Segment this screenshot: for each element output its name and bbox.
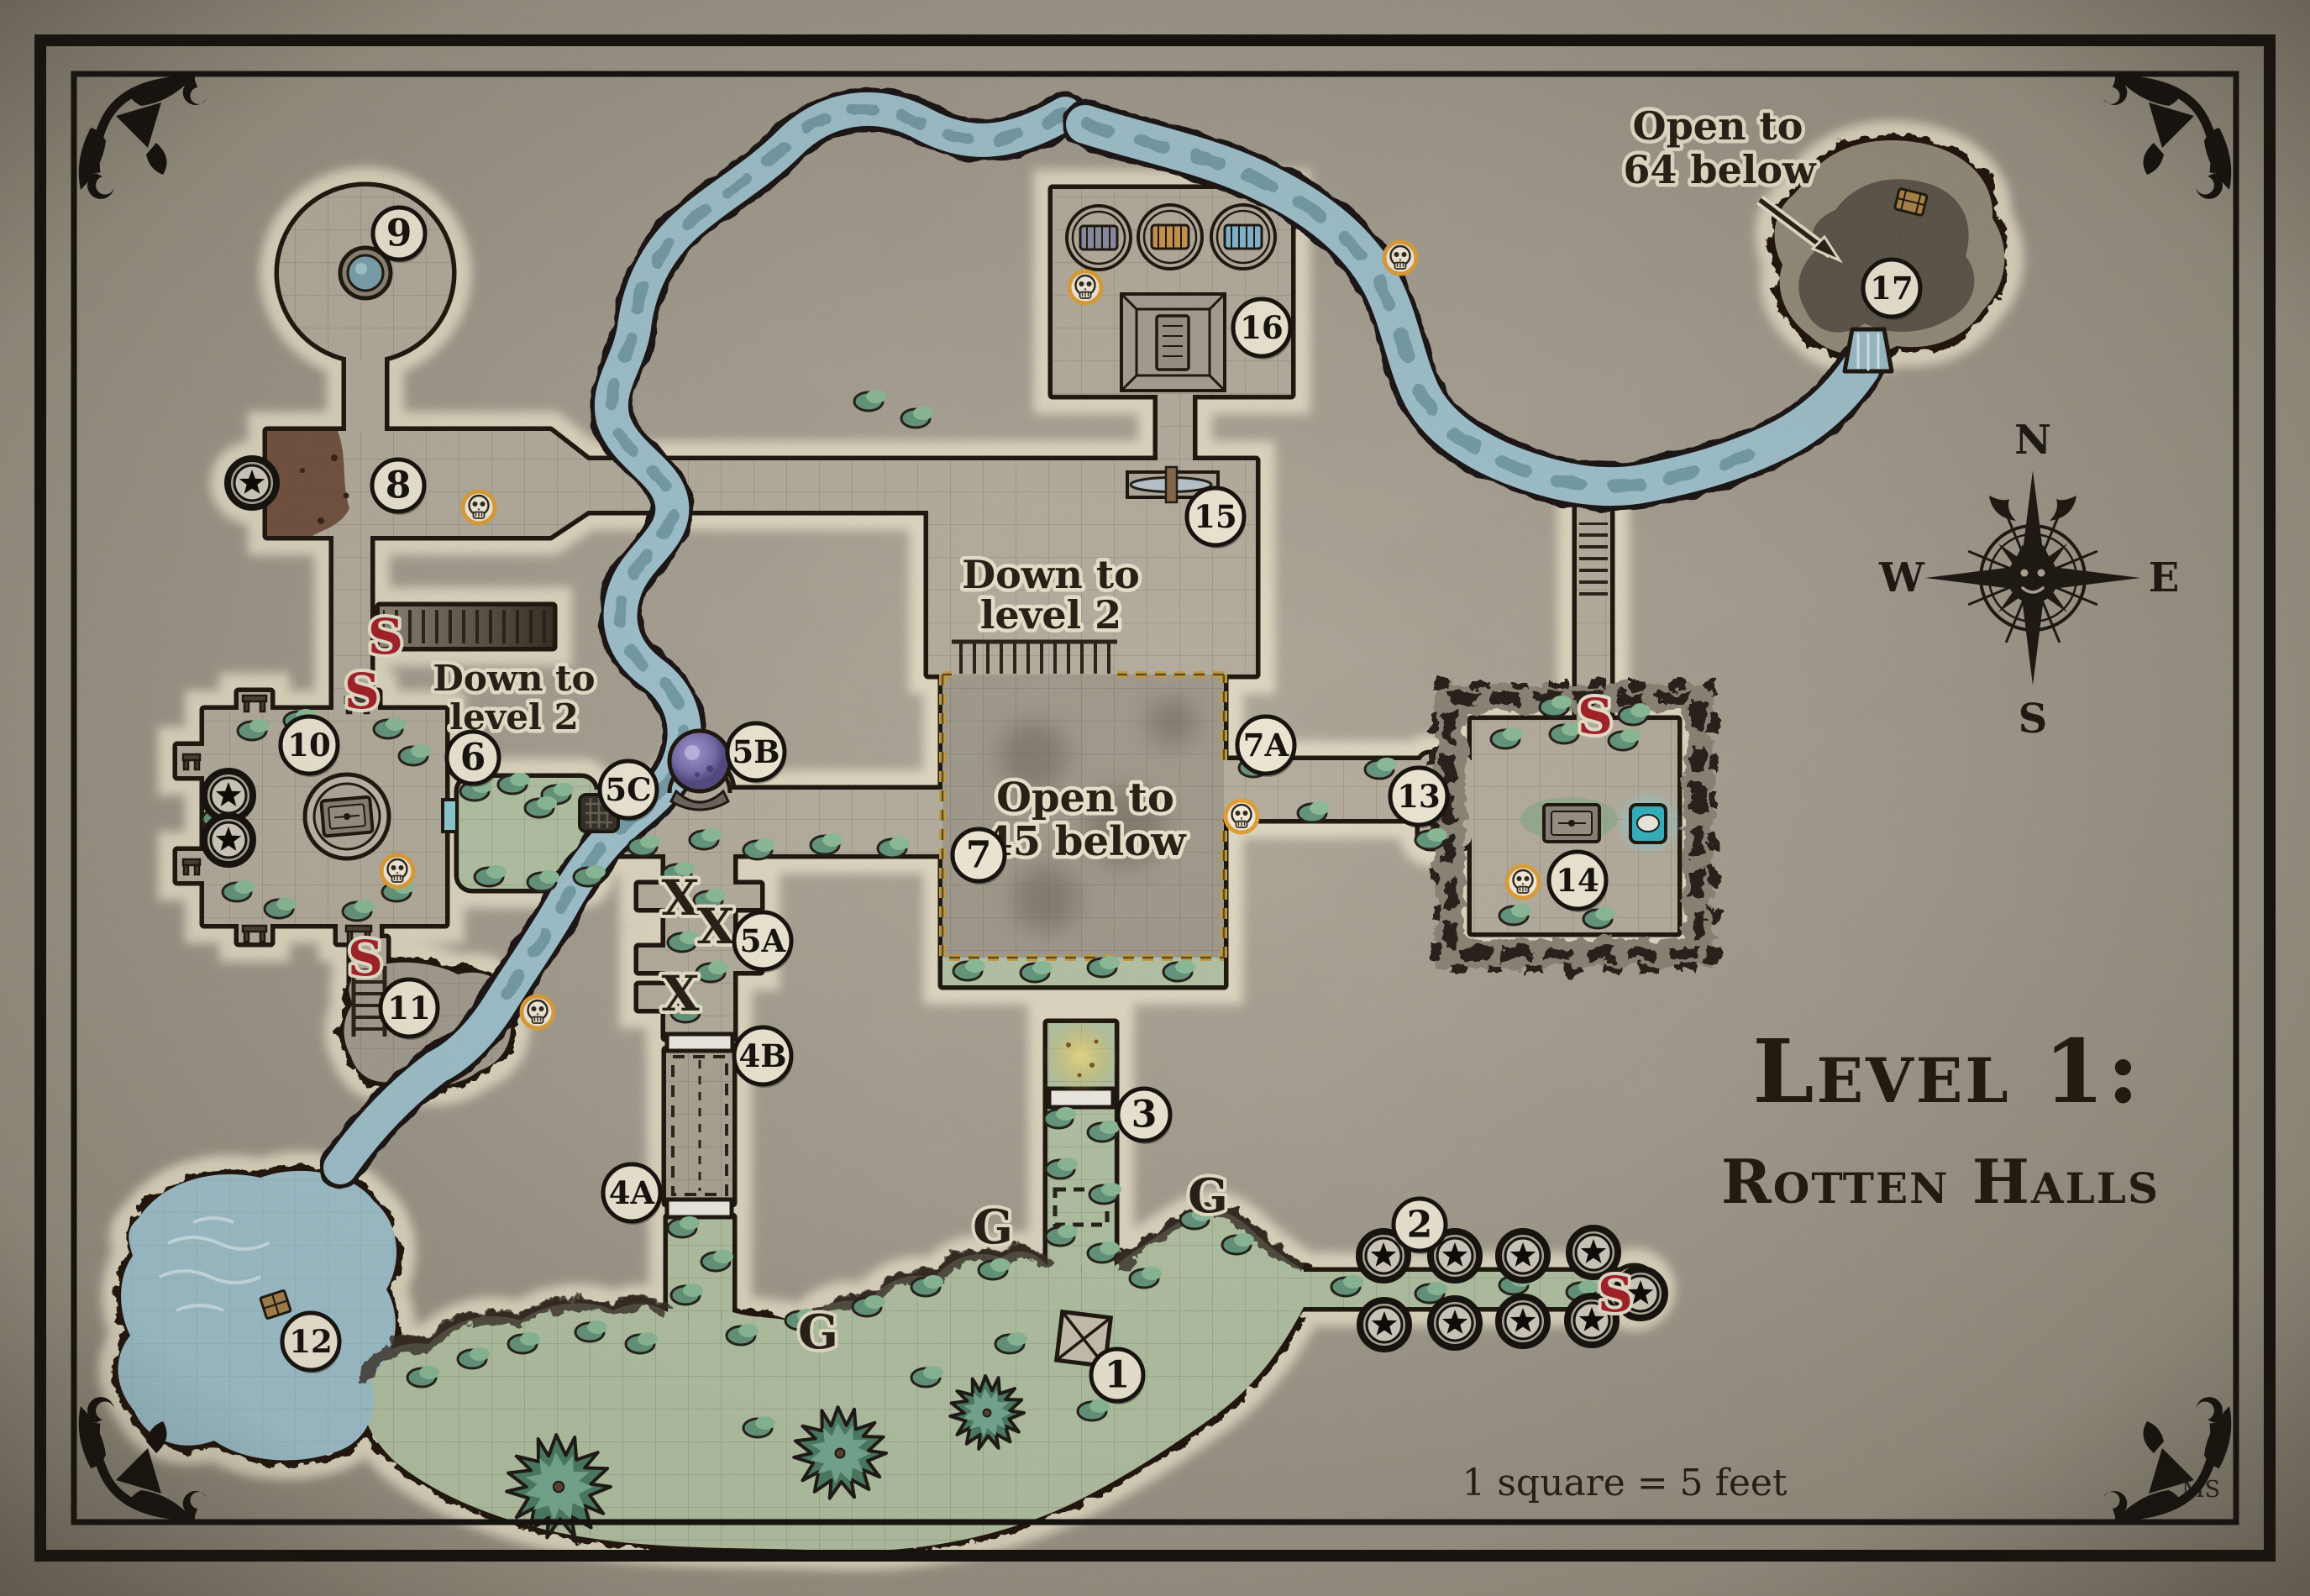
vignette-overlay	[0, 0, 2310, 1596]
dungeon-map-page: Open to 64 below Down to level 2 Down to…	[0, 0, 2310, 1596]
dungeon-map-canvas: Open to 64 below Down to level 2 Down to…	[0, 0, 2310, 1596]
